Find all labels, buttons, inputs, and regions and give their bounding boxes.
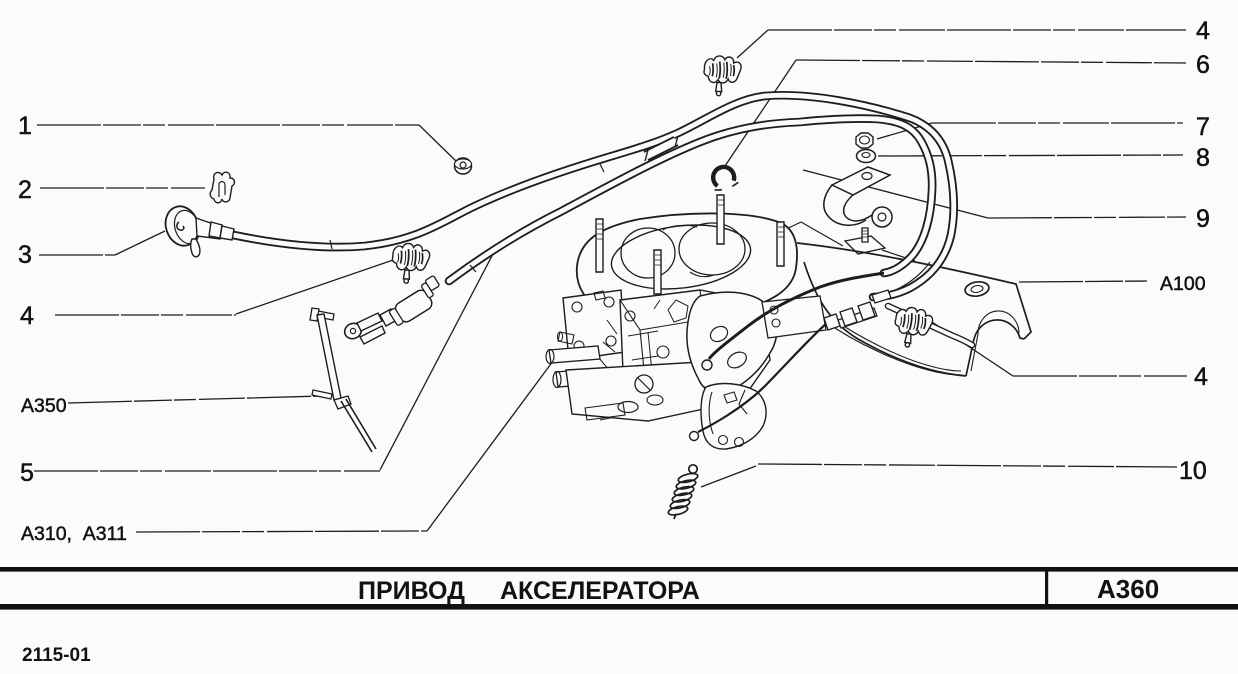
svg-text:10: 10 [1179,457,1207,485]
svg-text:3: 3 [18,241,32,269]
svg-text:4: 4 [1194,363,1208,391]
svg-text:5: 5 [20,459,34,487]
svg-text:4: 4 [1196,17,1210,45]
svg-text:1: 1 [18,112,32,140]
svg-text:A350: A350 [21,395,67,417]
svg-text:8: 8 [1196,144,1210,172]
svg-text:2115-01: 2115-01 [22,645,91,666]
svg-text:9: 9 [1196,205,1210,233]
svg-text:ПРИВОД: ПРИВОД [358,577,465,605]
svg-text:2: 2 [18,176,32,204]
svg-text:4: 4 [20,302,34,330]
svg-text:A360: A360 [1097,574,1159,604]
svg-text:A310, A311: A310, A311 [21,523,127,545]
svg-text:6: 6 [1196,51,1210,79]
svg-text:7: 7 [1196,113,1210,141]
svg-text:АКСЕЛЕРАТОРА: АКСЕЛЕРАТОРА [500,577,700,605]
svg-text:A100: A100 [1160,273,1206,295]
